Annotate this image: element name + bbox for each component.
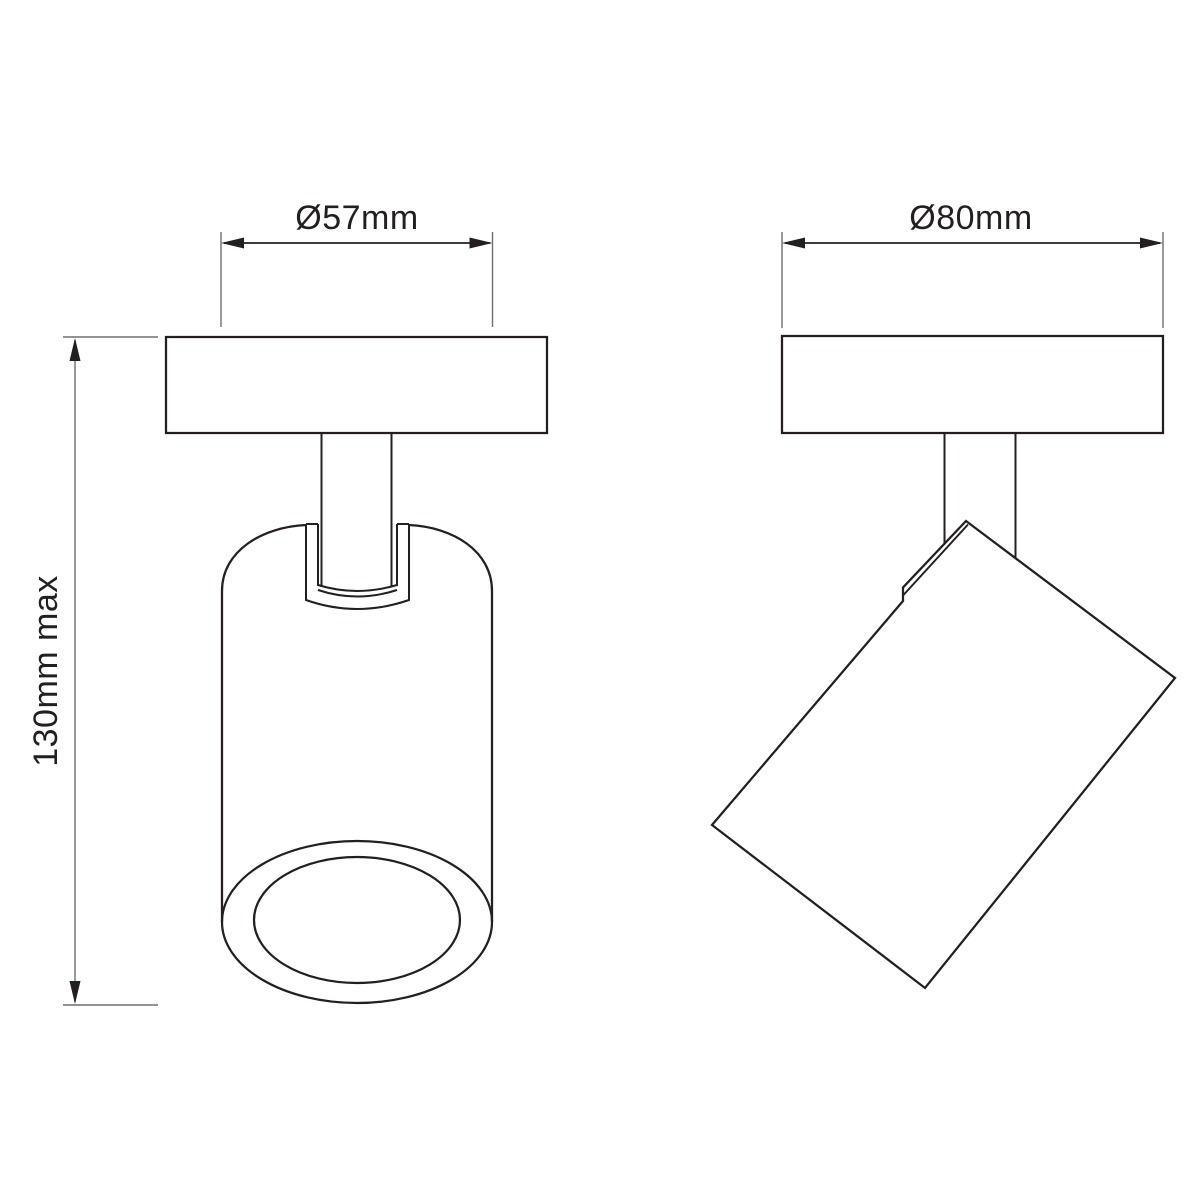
arrow-up-icon: [70, 338, 81, 361]
side-ceiling-plate: [782, 336, 1163, 433]
arrow-down-icon: [70, 981, 81, 1004]
max-height-label: 130mm max: [27, 575, 65, 767]
front-ceiling-plate: [166, 337, 547, 433]
arrow-left-icon: [221, 238, 244, 249]
drawing-canvas: Ø57mm Ø80mm 130mm max: [0, 0, 1200, 1200]
arrow-left-icon: [782, 238, 805, 249]
side-body: [712, 521, 1175, 988]
side-diameter-label: Ø80mm: [909, 199, 1032, 237]
arrow-right-icon: [1140, 238, 1163, 249]
dimension-front-diameter: Ø57mm: [221, 199, 493, 327]
front-diameter-label: Ø57mm: [295, 199, 418, 237]
side-slot-inner-line: [903, 525, 968, 596]
technical-drawing: Ø57mm Ø80mm 130mm max: [0, 0, 1200, 1200]
front-view: [166, 337, 547, 1003]
dimension-max-height: 130mm max: [27, 337, 158, 1005]
dimension-side-diameter: Ø80mm: [782, 199, 1163, 328]
arrow-right-icon: [470, 238, 493, 249]
front-lamp-face: [254, 857, 460, 983]
front-body-bottom-rim: [222, 841, 492, 1003]
side-view: [712, 336, 1175, 988]
front-slot-inner: [318, 524, 397, 591]
